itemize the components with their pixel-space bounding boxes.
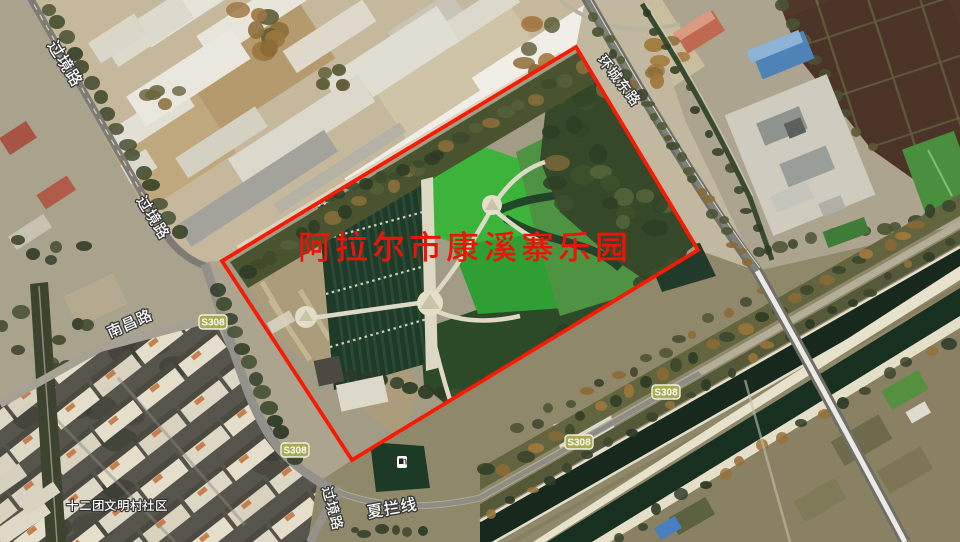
svg-text:S308: S308	[654, 388, 678, 399]
svg-text:S308: S308	[201, 318, 225, 329]
svg-text:S308: S308	[283, 446, 307, 457]
svg-text:S308: S308	[567, 438, 591, 449]
